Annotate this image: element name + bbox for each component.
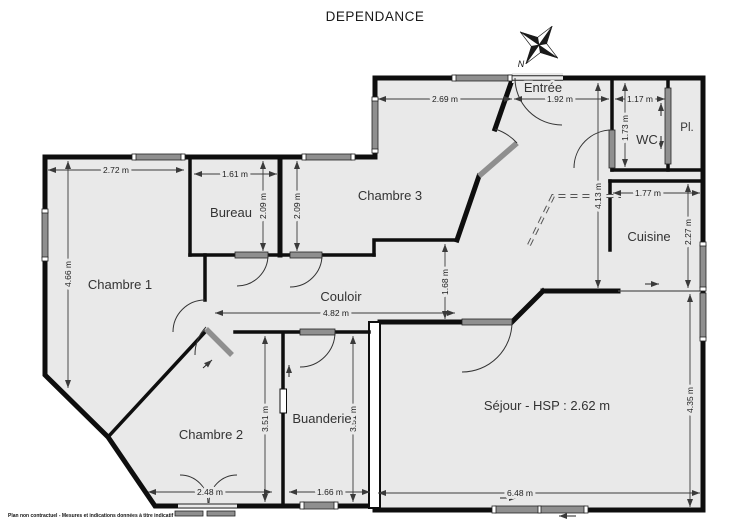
dimension-label: 4.13 m — [593, 183, 603, 209]
window-cap — [181, 154, 185, 160]
window — [135, 154, 182, 160]
dimension-label: 4.66 m — [63, 261, 73, 287]
shutter-bar — [175, 511, 203, 516]
dimension-label: 2.27 m — [683, 219, 693, 245]
window — [372, 100, 378, 150]
window-cap — [351, 154, 355, 160]
window-cap — [452, 75, 456, 81]
floor-plan-page: DEPENDANCE N — [0, 0, 750, 530]
window — [455, 75, 512, 81]
room-label-sejour: Séjour - HSP : 2.62 m — [484, 398, 610, 413]
dimension-label: 1.17 m — [627, 94, 653, 104]
room-label-couloir: Couloir — [320, 289, 362, 304]
room-label-cuisine: Cuisine — [627, 229, 670, 244]
room-label-buanderie: Buanderie — [292, 411, 351, 426]
window-cap — [42, 257, 48, 261]
room-label-chambre2: Chambre 2 — [179, 427, 243, 442]
window-cap — [300, 502, 304, 509]
window-cap — [538, 506, 541, 513]
window-cap — [302, 154, 306, 160]
compass-north-label: N — [518, 59, 525, 69]
wall-notch — [280, 389, 287, 413]
dimension-label: 1.68 m — [440, 269, 450, 295]
window-cap — [492, 506, 496, 513]
window-cap — [42, 209, 48, 213]
dimension-label: 1.77 m — [635, 188, 661, 198]
dimension-label: 2.69 m — [432, 94, 458, 104]
dimension-label: 2.48 m — [197, 487, 223, 497]
window — [305, 154, 352, 160]
window-cap — [700, 337, 706, 341]
disclaimer-text: Plan non contractuel - Mesures et indica… — [8, 513, 174, 519]
compass-star-icon — [507, 13, 571, 77]
room-label-chambre3: Chambre 3 — [358, 188, 422, 203]
window — [42, 212, 48, 258]
door-leaf — [235, 252, 268, 258]
dimension-label: 4.82 m — [323, 308, 349, 318]
placard-sliding-door — [665, 88, 671, 164]
room-label-entree: Entrée — [524, 80, 562, 95]
plan-title: DEPENDANCE — [326, 9, 425, 24]
window-cap — [372, 97, 378, 101]
dimension-label: 2.09 m — [258, 193, 268, 219]
floor-plan-canvas: DEPENDANCE N — [0, 0, 750, 530]
window-cap — [334, 502, 338, 509]
dimension-label: 1.66 m — [317, 487, 343, 497]
window-cap — [372, 149, 378, 153]
room-label-placard: Pl. — [680, 122, 693, 134]
dimension-label: 2.09 m — [292, 193, 302, 219]
dimension-label: 3.51 m — [260, 406, 270, 432]
compass-rose: N — [507, 13, 571, 77]
dimension-label: 1.61 m — [222, 169, 248, 179]
room-label-bureau: Bureau — [210, 205, 252, 220]
window-cap — [584, 506, 588, 513]
dimension-label: 4.35 m — [685, 387, 695, 413]
window — [700, 245, 706, 288]
door-leaf — [609, 130, 615, 168]
dimension-label: 2.72 m — [103, 165, 129, 175]
door-leaf — [462, 319, 512, 325]
dimension-label: 1.73 m — [620, 115, 630, 141]
window-cap — [132, 154, 136, 160]
door-leaf — [300, 329, 335, 335]
wall-buanderie-sejour — [369, 322, 380, 508]
room-label-chambre1: Chambre 1 — [88, 277, 152, 292]
window-cap — [700, 242, 706, 246]
shutter-bar — [207, 511, 235, 516]
window-cap — [508, 75, 512, 81]
window-cap — [700, 287, 706, 291]
window — [700, 293, 706, 338]
dimension-label: 1.92 m — [547, 94, 573, 104]
window — [303, 502, 335, 509]
dimension-label: 6.48 m — [507, 488, 533, 498]
door-leaf — [290, 252, 322, 258]
room-label-wc: WC — [636, 132, 658, 147]
